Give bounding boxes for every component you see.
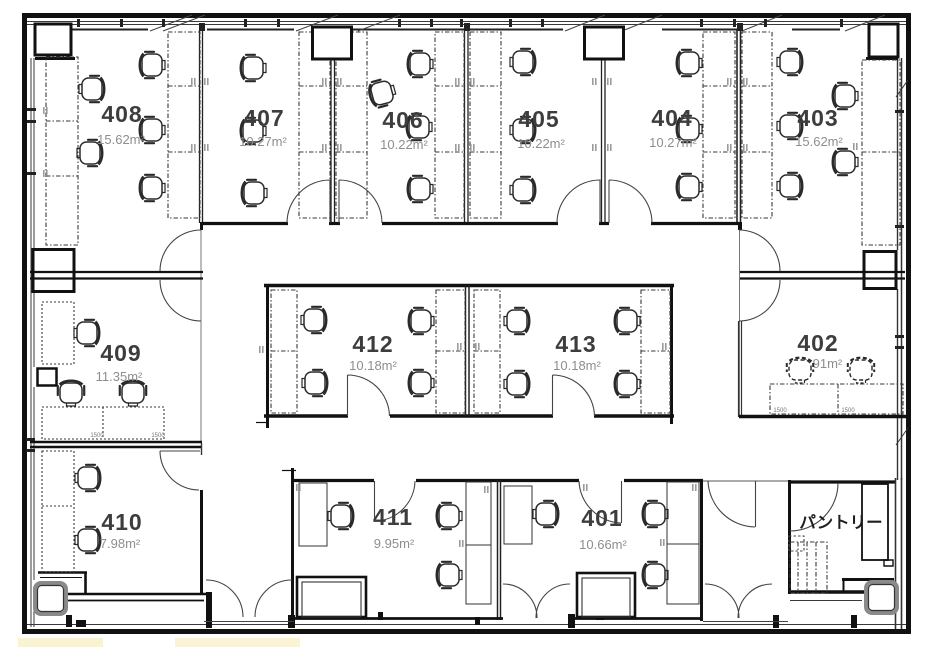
svg-text:15.62m²: 15.62m² [97, 132, 145, 147]
svg-text:15.62m²: 15.62m² [795, 134, 843, 149]
svg-text:10.27m²: 10.27m² [649, 135, 697, 150]
svg-text:408: 408 [101, 101, 142, 127]
svg-text:10.66m²: 10.66m² [579, 537, 627, 552]
svg-text:409: 409 [100, 340, 141, 366]
svg-text:1500: 1500 [841, 408, 855, 414]
svg-text:1500: 1500 [90, 433, 104, 439]
svg-text:407: 407 [243, 105, 284, 131]
svg-text:404: 404 [651, 105, 692, 131]
svg-text:9.95m²: 9.95m² [374, 536, 415, 551]
svg-text:10.22m²: 10.22m² [517, 136, 565, 151]
svg-text:405: 405 [518, 106, 559, 132]
svg-text:11.35m²: 11.35m² [96, 369, 143, 384]
svg-text:413: 413 [555, 331, 596, 357]
svg-text:412: 412 [352, 331, 393, 357]
svg-text:10.27m²: 10.27m² [239, 134, 287, 149]
svg-text:7.98m²: 7.98m² [100, 536, 141, 551]
svg-text:パントリー: パントリー [799, 513, 882, 532]
svg-text:402: 402 [797, 330, 838, 356]
svg-text:10.18m²: 10.18m² [553, 358, 601, 373]
svg-text:10.18m²: 10.18m² [349, 358, 397, 373]
svg-text:1500: 1500 [151, 433, 165, 439]
svg-text:401: 401 [581, 505, 622, 531]
svg-text:406: 406 [382, 107, 423, 133]
svg-text:1500: 1500 [773, 408, 787, 414]
svg-text:411: 411 [373, 504, 413, 530]
svg-text:10.22m²: 10.22m² [380, 137, 428, 152]
svg-text:410: 410 [101, 509, 142, 535]
svg-text:403: 403 [797, 105, 838, 131]
